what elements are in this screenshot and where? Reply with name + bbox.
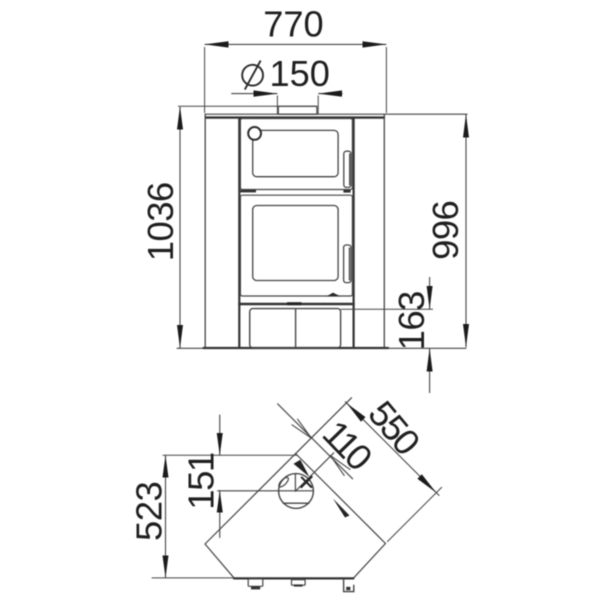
svg-text:1036: 1036 xyxy=(140,182,181,261)
svg-text:151: 151 xyxy=(181,453,222,510)
svg-text:996: 996 xyxy=(425,201,466,260)
svg-text:770: 770 xyxy=(263,4,323,45)
svg-text:163: 163 xyxy=(391,291,432,350)
svg-text:150: 150 xyxy=(270,53,330,94)
svg-text:523: 523 xyxy=(129,482,170,541)
